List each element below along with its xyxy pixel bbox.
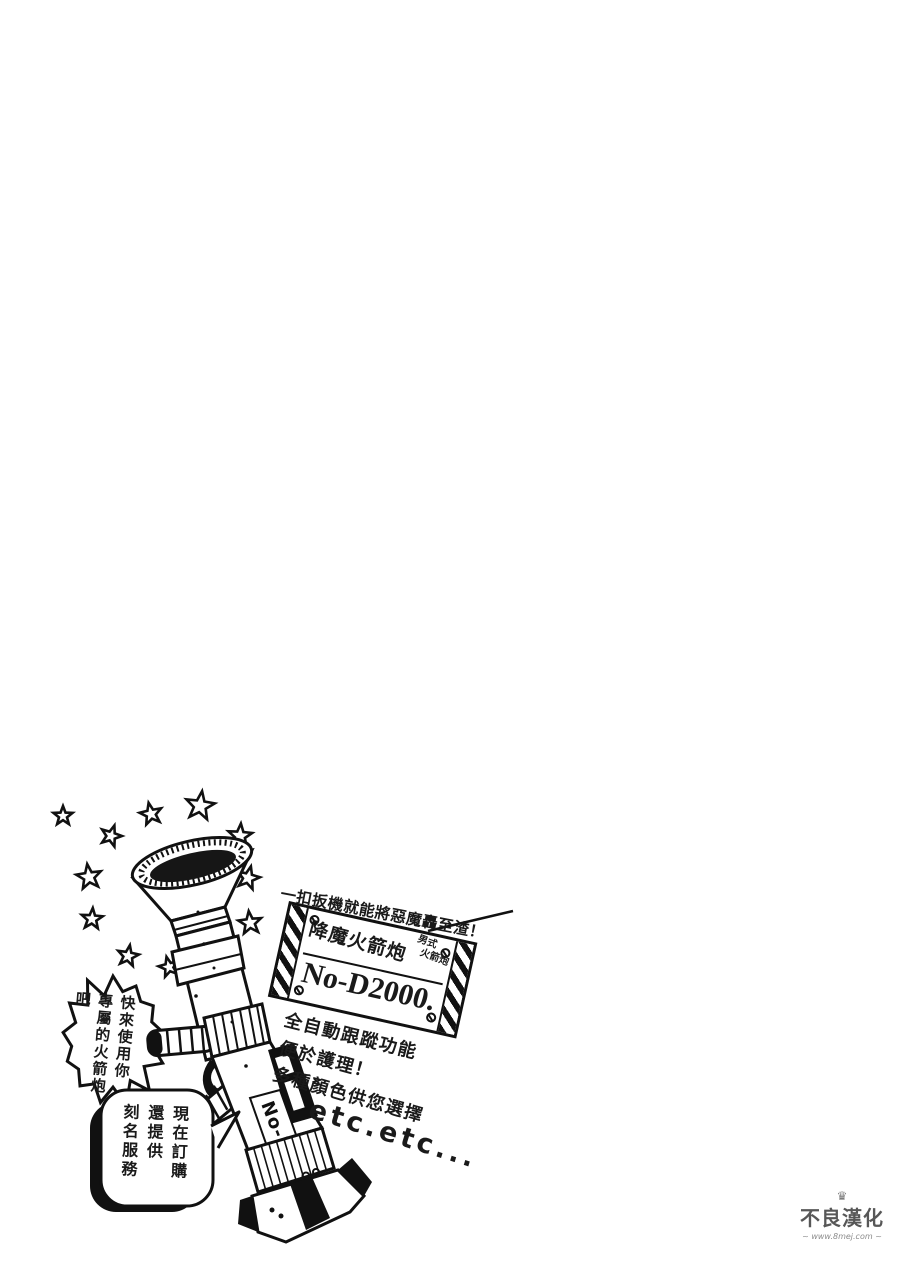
star-icon: [54, 806, 73, 824]
crown-icon: ♛: [794, 1190, 890, 1202]
star-icon: [118, 945, 139, 966]
sign-category: 男式 火箭炮: [412, 934, 455, 969]
star-icon: [76, 864, 101, 888]
watermark-url-text: www.8mej.com: [794, 1232, 890, 1241]
order-bubble-text: 現在訂購 還提供 刻名服務: [114, 1103, 192, 1206]
manga-page: No-D: [0, 0, 900, 1280]
watermark-group-name: 不良漢化: [794, 1202, 890, 1231]
foregrip-handle: [147, 1026, 215, 1057]
star-icon: [102, 826, 122, 847]
star-icon: [140, 803, 161, 825]
star-icon: [187, 791, 215, 819]
scanlation-watermark: ♛ 不良漢化 www.8mej.com: [794, 1190, 890, 1241]
burst-bubble-text: 快來使用你 專屬的火箭炮吧: [62, 990, 140, 1113]
star-icon: [82, 908, 103, 928]
star-icon: [238, 911, 261, 933]
